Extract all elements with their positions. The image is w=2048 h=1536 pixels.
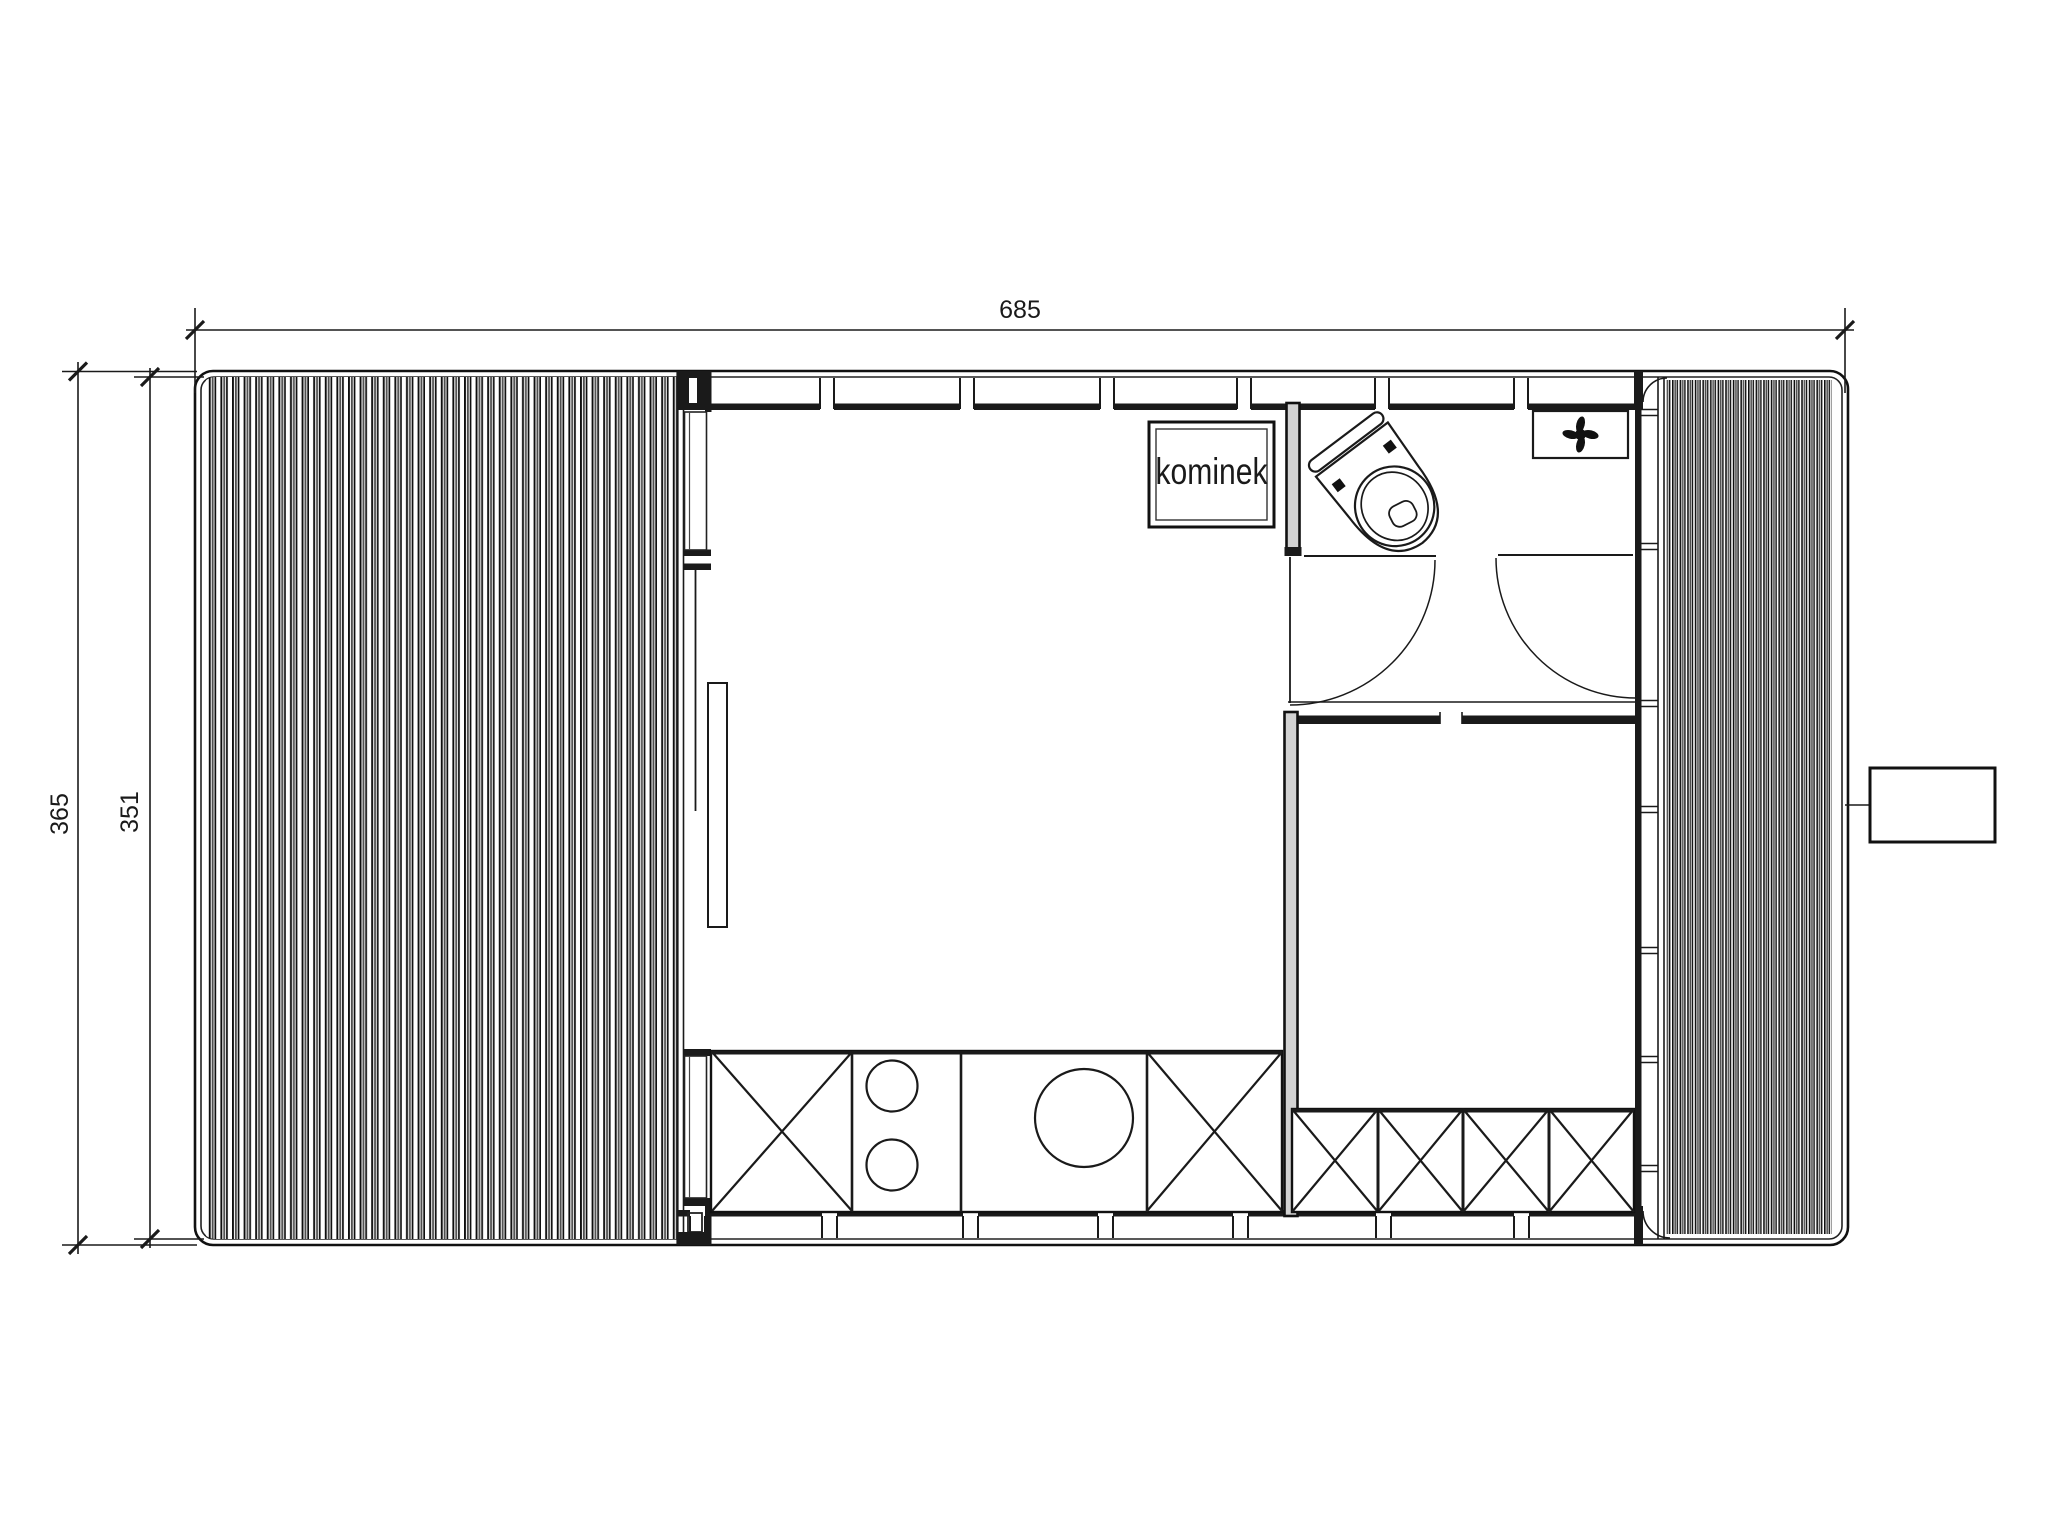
svg-text:685: 685 (999, 296, 1041, 324)
svg-text:kominek: kominek (1156, 451, 1268, 492)
svg-text:351: 351 (116, 791, 144, 833)
svg-text:365: 365 (46, 793, 74, 835)
